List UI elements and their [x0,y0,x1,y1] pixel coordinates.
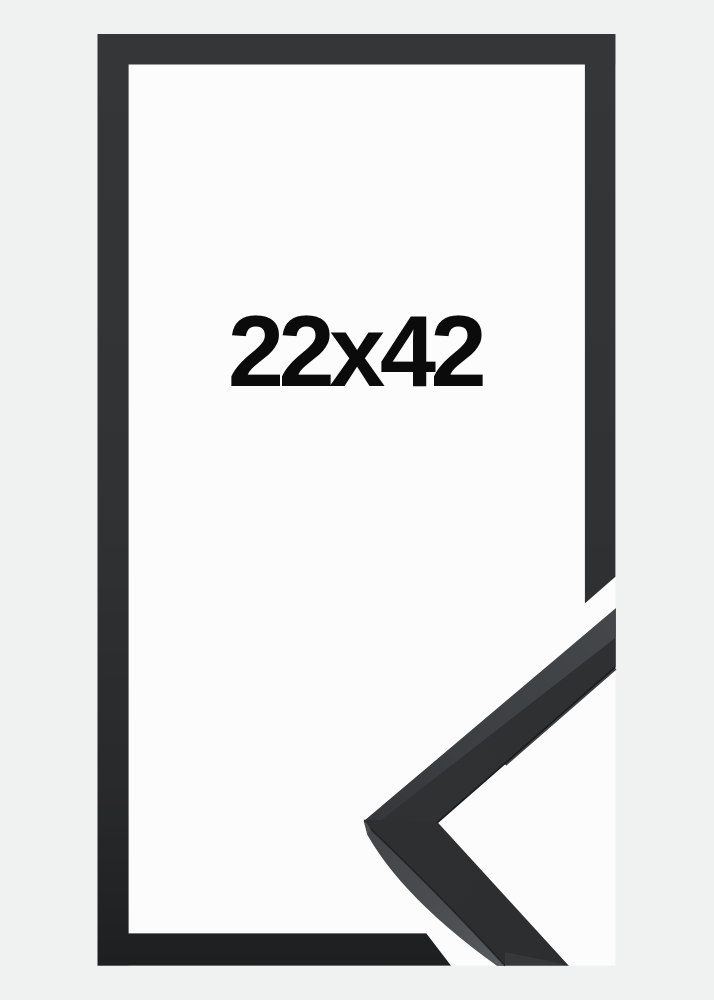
svg-text:22x42: 22x42 [228,296,484,408]
